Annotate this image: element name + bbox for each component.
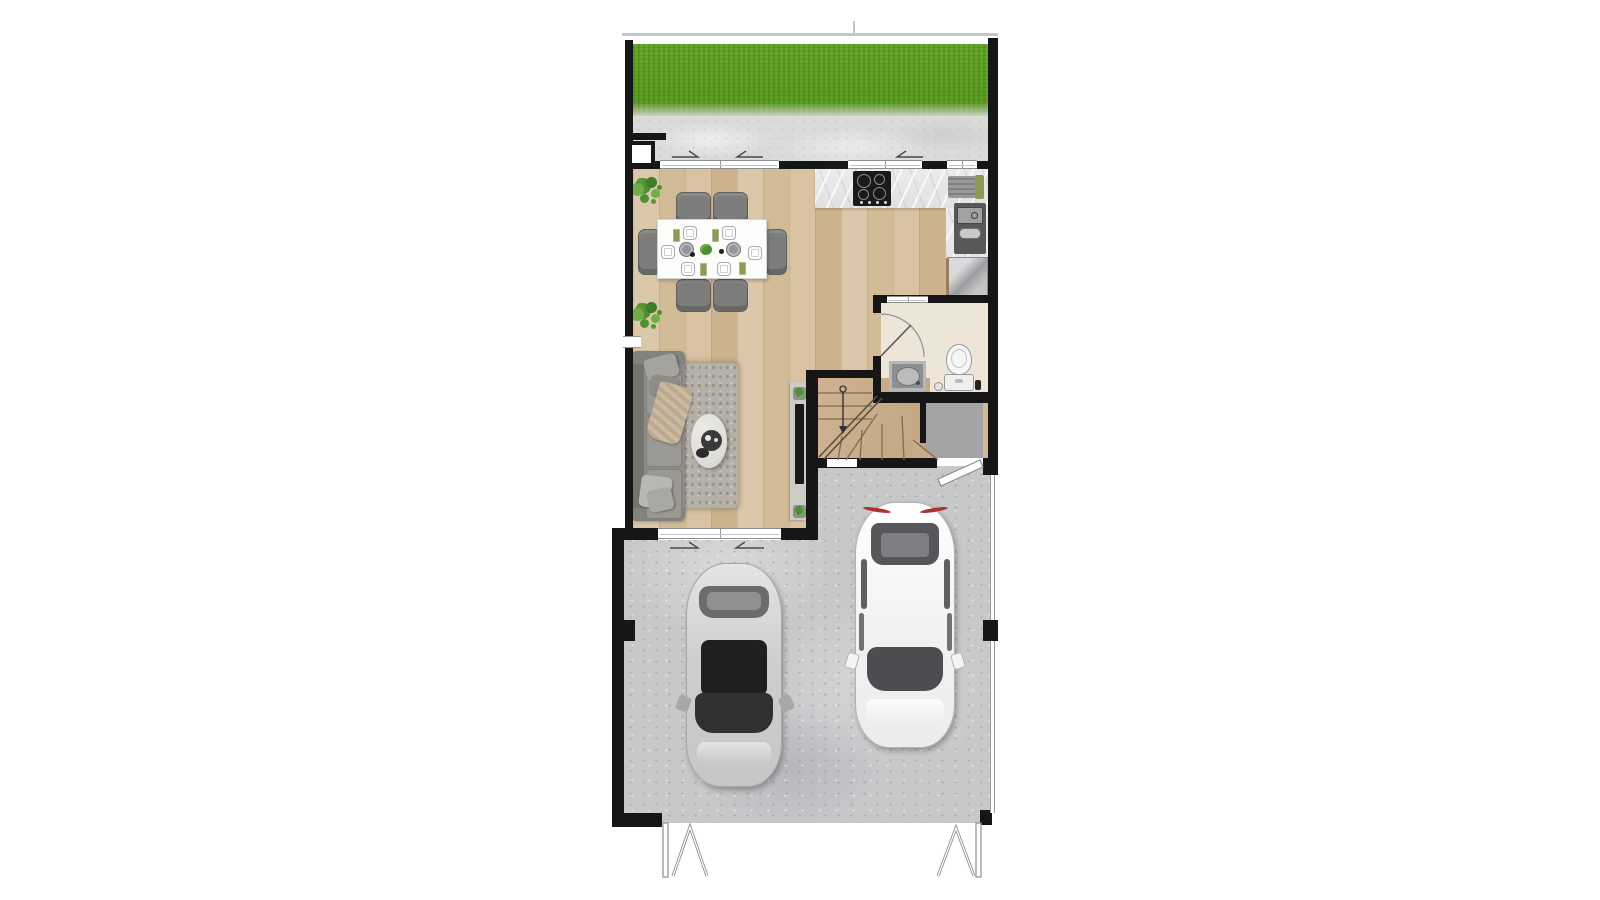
wall-niche [827,459,857,467]
decor-plate-icon [696,448,709,458]
bowl-icon [726,242,741,257]
napkin-icon [673,229,680,242]
napkin-icon [739,262,746,275]
wall-pier [983,458,998,475]
boundary-tick [853,21,855,33]
wall-garage-left [612,528,624,827]
cooktop-icon [853,171,891,206]
wall-pier [983,620,998,641]
napkin-icon [700,263,707,276]
car-windshield [695,693,773,733]
washbasin-icon [889,361,926,391]
living-wall [781,528,818,540]
burner-icon [858,189,869,200]
plate-icon [717,262,731,276]
dining-chair [676,279,711,312]
car-hood [866,699,944,739]
refrigerator-icon [948,257,988,296]
boundary-wall-thin [990,475,995,813]
window-kitchen [848,160,922,169]
site-boundary-line [622,33,998,36]
napkin-icon [712,229,719,242]
car-roof [701,640,767,696]
front-wall [977,161,998,169]
burner-icon [874,174,885,185]
plate-icon [683,226,697,240]
car-silver [686,563,782,787]
dining-chair [764,229,787,275]
wall-step [630,133,666,140]
gate-post-right [938,823,981,877]
car-side-window [861,559,867,609]
plate-icon [681,262,695,276]
tv-wall [806,370,818,540]
car-side-window [944,559,950,609]
living-wall [624,528,658,540]
front-wall [922,161,947,169]
wall-left [625,348,633,528]
side-door-opening [937,458,983,466]
wall-left [625,40,633,336]
floor-plan-canvas [0,0,1600,900]
potted-plant-icon [793,387,806,400]
potted-plant-icon [793,505,806,518]
bathroom-wall-bottom [873,392,988,403]
plant-icon [635,303,651,319]
shaft-box [628,141,655,167]
gate-post-left [663,823,707,877]
window-dining [660,160,779,169]
bathroom-vent-window [887,296,928,303]
grass-edge-fade [633,102,988,118]
car-rear-window [699,586,769,618]
decor-dot-icon [690,252,695,257]
toilet-tank-icon [944,374,974,391]
car-side-window [859,613,864,651]
plate-icon [748,246,762,260]
burner-icon [873,187,886,200]
car-side-window [947,613,952,651]
plate-icon [722,226,736,240]
toilet-bowl-icon [946,344,972,375]
car-windshield [867,647,943,691]
television-icon [795,404,804,484]
floor-drain-icon [934,382,943,391]
front-wall [779,161,848,169]
hall-wall [920,403,926,443]
car-hood [697,742,771,780]
wall-right [988,38,998,475]
decor-dot-icon [719,249,724,254]
bathroom-accessory-icon [975,380,981,390]
plant-icon [635,178,651,194]
car-white [855,502,955,748]
dish-tray-icon [959,228,981,239]
burner-icon [857,174,871,188]
window-living [658,528,781,539]
dining-chair [713,279,748,312]
table-plant-icon [700,244,712,255]
sink-basin-icon [957,207,983,224]
wall-opening [623,336,641,348]
rear-hallway-floor [925,403,983,458]
wall-pier [624,620,635,641]
car-rear-window [871,523,939,565]
bathroom-wall-left [873,295,881,313]
kitchen-appliance-icon [948,176,982,198]
plate-icon [661,245,675,259]
window-kitchen-2 [947,160,977,169]
wall-bottom-left [612,813,662,827]
